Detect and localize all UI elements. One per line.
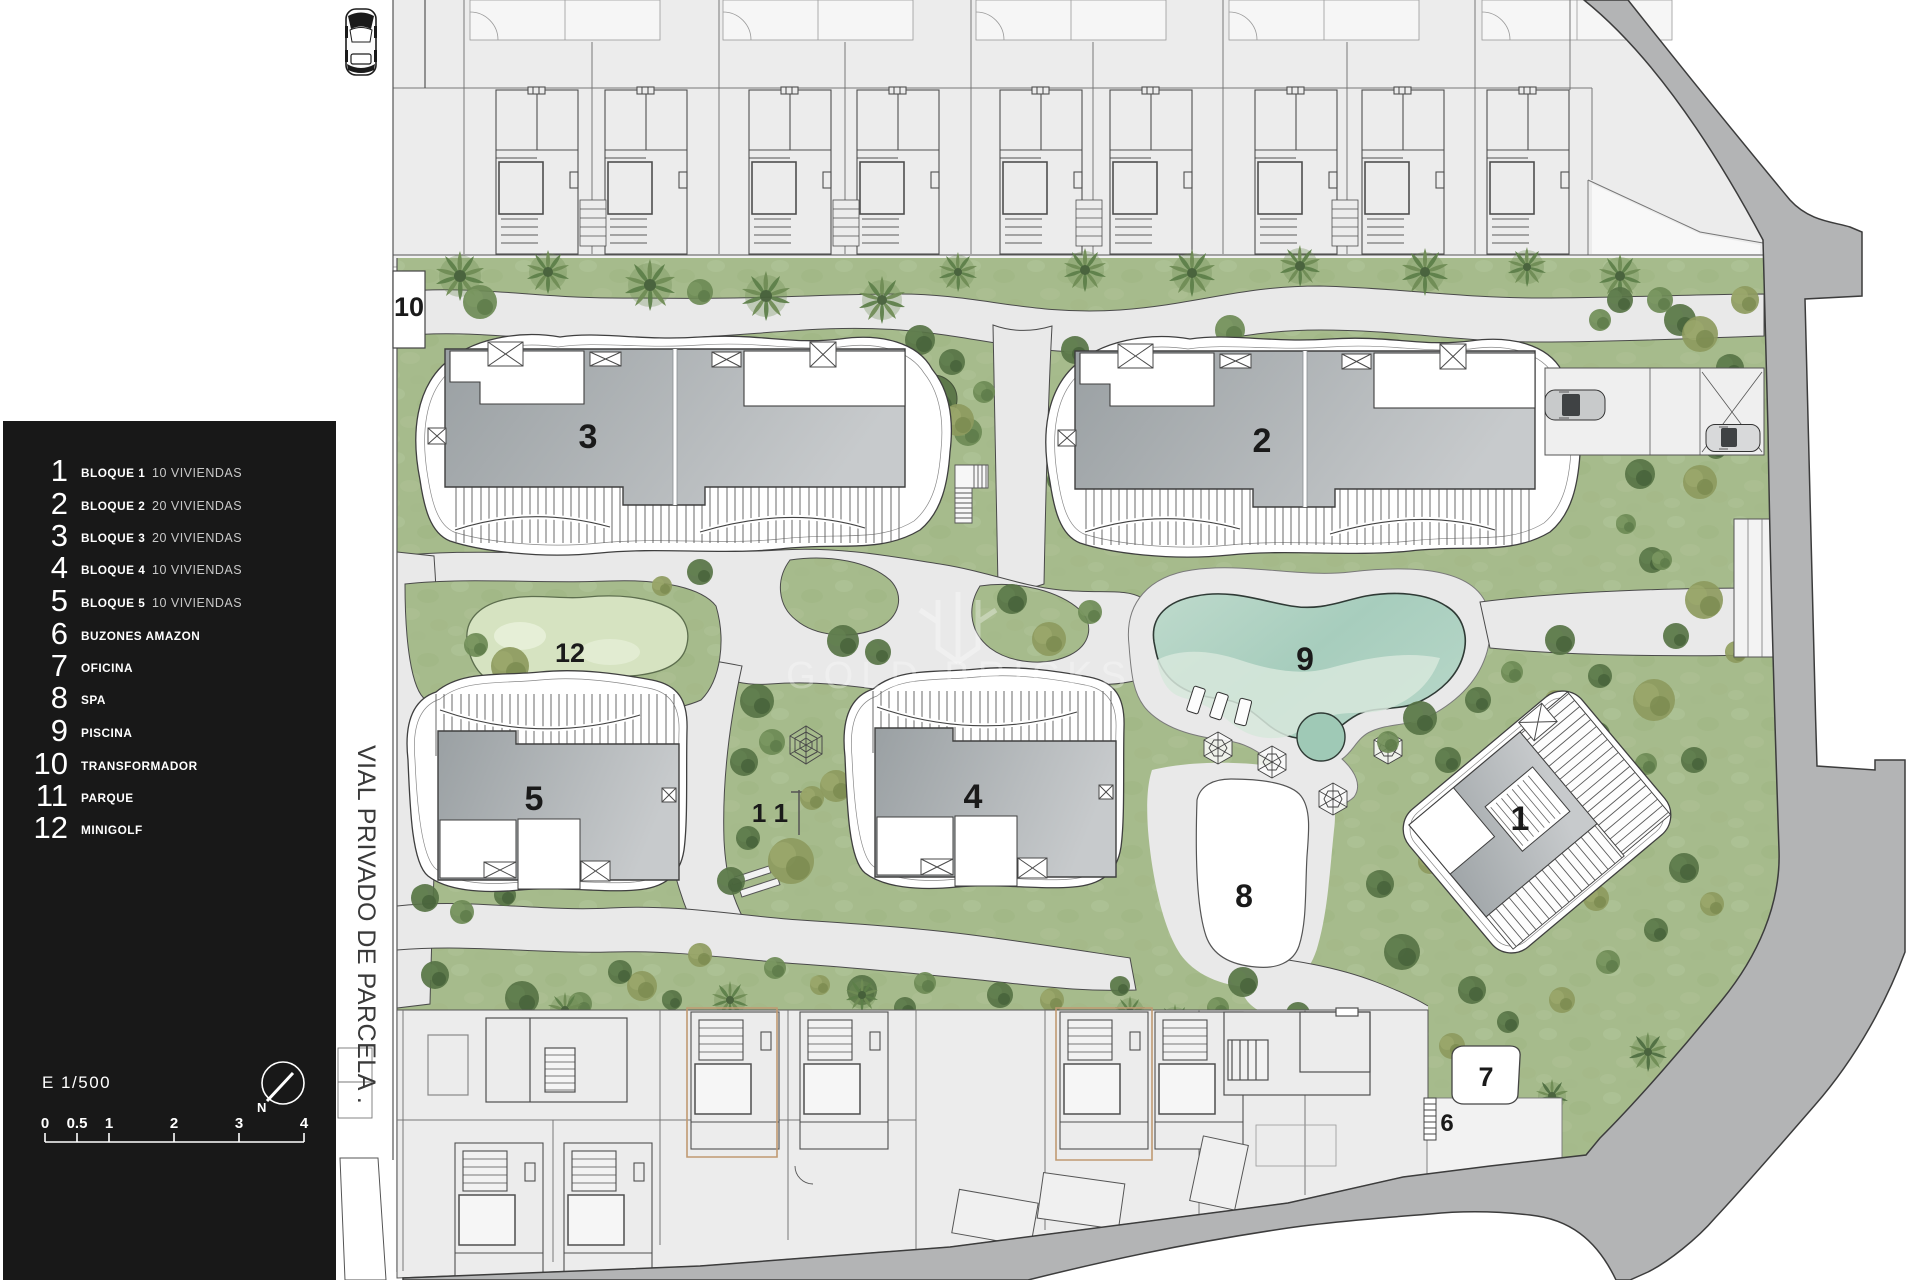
svg-text:SPA: SPA [81, 693, 106, 707]
svg-text:BLOQUE 4: BLOQUE 4 [81, 563, 145, 577]
svg-text:20 VIVIENDAS: 20 VIVIENDAS [152, 531, 242, 545]
svg-text:10: 10 [394, 292, 424, 322]
svg-text:9: 9 [51, 713, 68, 748]
svg-text:12: 12 [34, 810, 68, 845]
svg-text:BUZONES AMAZON: BUZONES AMAZON [81, 629, 200, 643]
svg-text:0.5: 0.5 [67, 1115, 88, 1132]
svg-text:1: 1 [51, 453, 68, 488]
svg-text:MINIGOLF: MINIGOLF [81, 823, 143, 837]
svg-text:GOLD BRICKS: GOLD BRICKS [786, 655, 1134, 697]
svg-text:2: 2 [1253, 422, 1272, 460]
svg-text:3: 3 [51, 518, 68, 553]
svg-text:1: 1 [1511, 800, 1530, 838]
svg-text:0: 0 [41, 1115, 49, 1132]
svg-text:E 1/500: E 1/500 [42, 1073, 111, 1092]
svg-text:5: 5 [51, 583, 68, 618]
svg-text:VIAL PRIVADO DE PARCELA .: VIAL PRIVADO DE PARCELA . [352, 745, 380, 1104]
svg-text:20 VIVIENDAS: 20 VIVIENDAS [152, 499, 242, 513]
svg-text:2: 2 [51, 486, 68, 521]
svg-text:7: 7 [51, 648, 68, 683]
svg-text:10 VIVIENDAS: 10 VIVIENDAS [152, 466, 242, 480]
svg-text:5: 5 [525, 780, 544, 818]
svg-text:4: 4 [964, 778, 983, 816]
svg-text:10: 10 [34, 746, 68, 781]
svg-text:12: 12 [555, 638, 585, 668]
svg-text:BLOQUE 3: BLOQUE 3 [81, 531, 145, 545]
svg-text:PISCINA: PISCINA [81, 726, 132, 740]
svg-text:7: 7 [1478, 1062, 1493, 1092]
svg-text:3: 3 [235, 1115, 243, 1132]
svg-text:OFICINA: OFICINA [81, 661, 133, 675]
svg-text:3: 3 [579, 418, 598, 456]
svg-text:PARQUE: PARQUE [81, 791, 134, 805]
svg-text:2: 2 [170, 1115, 178, 1132]
svg-text:8: 8 [1235, 878, 1253, 914]
svg-text:BLOQUE 1: BLOQUE 1 [81, 466, 145, 480]
svg-text:4: 4 [51, 550, 68, 585]
svg-text:TRANSFORMADOR: TRANSFORMADOR [81, 759, 198, 773]
svg-text:6: 6 [1440, 1110, 1453, 1137]
svg-text:10 VIVIENDAS: 10 VIVIENDAS [152, 563, 242, 577]
svg-text:N: N [257, 1100, 266, 1115]
svg-text:11: 11 [36, 778, 68, 813]
svg-text:1: 1 [105, 1115, 113, 1132]
svg-text:1 1: 1 1 [752, 798, 788, 828]
svg-text:8: 8 [51, 680, 68, 715]
svg-text:BLOQUE 2: BLOQUE 2 [81, 499, 145, 513]
svg-text:4: 4 [300, 1115, 309, 1132]
svg-text:9: 9 [1296, 641, 1314, 677]
svg-text:6: 6 [51, 616, 68, 651]
svg-text:BLOQUE 5: BLOQUE 5 [81, 596, 145, 610]
svg-text:10 VIVIENDAS: 10 VIVIENDAS [152, 596, 242, 610]
